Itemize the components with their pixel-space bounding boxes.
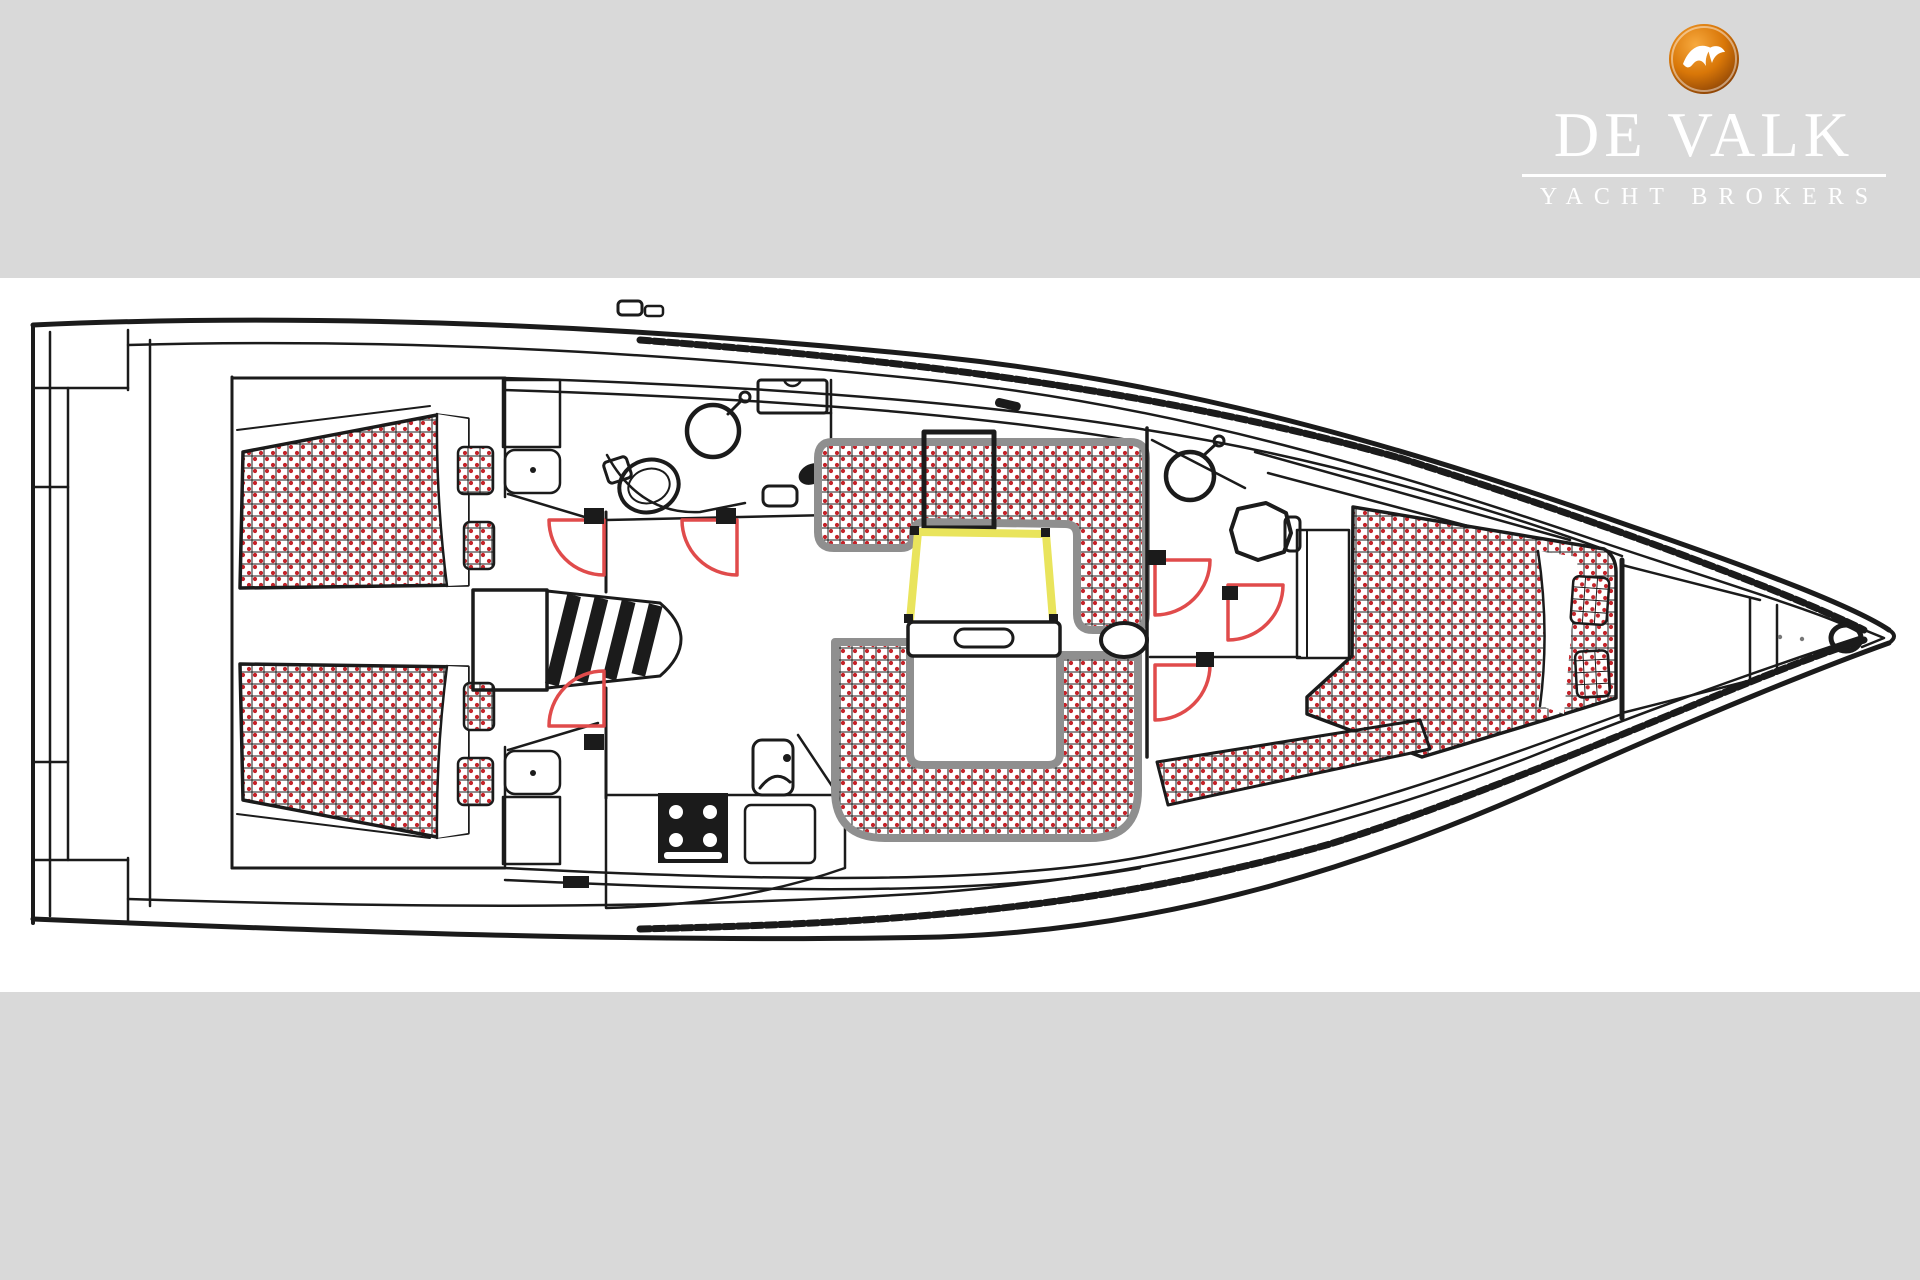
page: DE VALK YACHT BROKERS: [0, 0, 1920, 1280]
galley-sink: [745, 805, 815, 863]
nav-seat: [753, 735, 838, 795]
saloon-table-highlight: [910, 532, 1053, 620]
locker: [503, 797, 560, 864]
aft-cabin-port: [240, 380, 560, 588]
logo-divider: [1522, 174, 1886, 177]
pillow: [464, 522, 494, 569]
side-bench: [1157, 720, 1430, 805]
pillow: [1575, 650, 1610, 698]
de-valk-logo: DE VALK YACHT BROKERS: [1518, 22, 1890, 211]
brand-name: DE VALK: [1518, 102, 1890, 168]
falcon-icon: [1667, 22, 1741, 96]
pillow: [458, 447, 493, 494]
berth-mattress: [240, 415, 468, 588]
pillow: [1570, 576, 1609, 625]
brand-tagline: YACHT BROKERS: [1529, 184, 1890, 211]
toilet: [1231, 503, 1291, 560]
settee-u-aft: [835, 642, 1138, 838]
locker: [1297, 530, 1349, 658]
pillow: [458, 758, 493, 805]
transom: [33, 325, 150, 923]
table-leaf: [908, 622, 1060, 656]
berth-mattress: [240, 664, 468, 837]
stool: [1101, 623, 1147, 657]
saloon: [818, 432, 1147, 838]
